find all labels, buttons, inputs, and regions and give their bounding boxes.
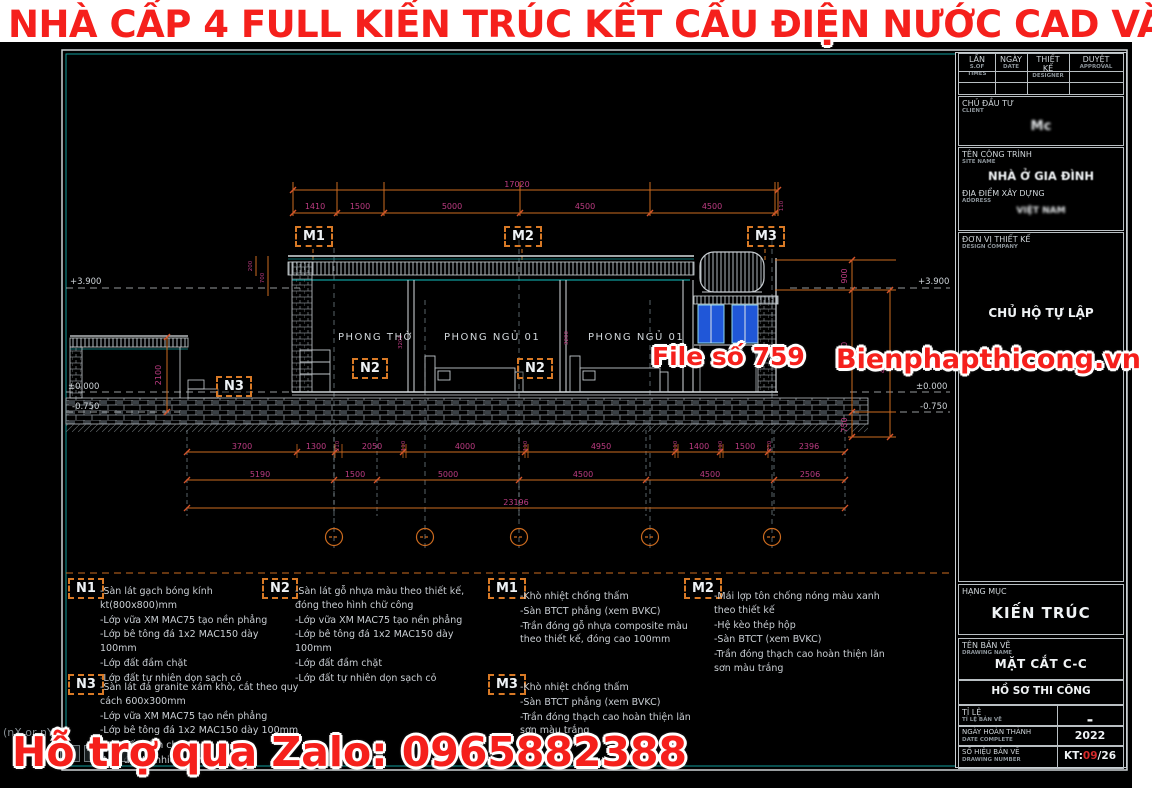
dim-label: 1500 (345, 470, 365, 479)
rev-col-ngay: NGÀY (995, 54, 1027, 64)
dim-label: 750 (840, 417, 849, 432)
note-line: -Trần đóng gỗ nhựa composite màu theo th… (520, 620, 705, 648)
watermark-file-number: File số 759 (652, 342, 805, 371)
dim-label: 1300 (306, 442, 326, 451)
dim-label: 110 (718, 440, 724, 451)
note-list-m2: -Mái lợp tôn chống nóng màu xanh theo th… (714, 590, 889, 677)
marker-m2: M2 (504, 226, 542, 247)
number-row: SỐ HIỆU BẢN VẼ DRAWING NUMBER KT:09/26 (958, 745, 1124, 769)
note-list-n2: -Sàn lát gỗ nhựa màu theo thiết kế, đóng… (295, 585, 475, 686)
number-prefix: KT: (1064, 750, 1083, 762)
address-sub: ADDRESS (959, 198, 1123, 205)
project-label: TÊN CÔNG TRÌNH (959, 148, 1123, 159)
room-label-tho: PHONG THỜ (338, 332, 414, 343)
note-line: -Lớp vữa XM MAC75 tạo nền phẳng (100, 710, 300, 724)
level-label: +3.900 (918, 277, 949, 287)
floor-ground (66, 392, 868, 432)
design-value: CHỦ HỘ TỰ LẬP (959, 306, 1123, 320)
note-line: -Lớp đất tự nhiên dọn sạch cỏ (295, 672, 475, 686)
dim-label: 200 (248, 260, 254, 271)
note-line: -Lớp đất đầm chặt (295, 657, 475, 671)
dim-label: 110 (401, 440, 407, 451)
note-line: -Khò nhiệt chống thấm (520, 590, 705, 604)
dim-label: 17020 (504, 180, 529, 189)
date-row: NGÀY HOÀN THÀNH DATE COMPLETE 2022 (958, 725, 1124, 747)
client-box: CHỦ ĐẦU TƯ CLIENT Mc (958, 96, 1124, 146)
promo-title: NHÀ CẤP 4 FULL KIẾN TRÚC KẾT CẤU ĐIỆN NƯ… (8, 3, 1152, 46)
drawing-value: MẶT CẮT C-C (959, 657, 1123, 671)
note-line: -Sàn BTCT phẳng (xem BVKC) (520, 605, 705, 619)
design-company-box: ĐƠN VỊ THIẾT KẾ DESIGN COMPANY CHỦ HỘ TỰ… (958, 232, 1124, 582)
promo-zalo: Hỗ trợ qua Zalo: 0965882388 (12, 728, 687, 776)
dim-label: 4000 (455, 442, 475, 451)
note-line: -Mái lợp tôn chống nóng màu xanh theo th… (714, 590, 889, 618)
note-line: -Lớp vữa XM MAC75 tạo nền phẳng (295, 614, 475, 628)
dim-label: 2100 (154, 365, 163, 385)
roof-slab (288, 256, 694, 280)
scale-row: TỈ LỆ TỈ LỆ BẢN VẼ - (958, 705, 1124, 727)
dim-label: 110 (673, 440, 679, 451)
note-marker-n2: N2 (262, 578, 298, 599)
marker-m3: M3 (747, 226, 785, 247)
note-line: -Lớp vữa XM MAC75 tạo nền phẳng (100, 614, 290, 628)
stage-value: HỒ SƠ THI CÔNG (959, 685, 1123, 697)
dim-label: 700 (260, 272, 266, 283)
dim-label: 1500 (350, 202, 370, 211)
level-dashes (66, 288, 950, 412)
note-line: -Sàn lát gỗ nhựa màu theo thiết kế, đóng… (295, 585, 475, 613)
dim-label: 5000 (438, 470, 458, 479)
rev-col-duyet: DUYỆT (1069, 54, 1123, 64)
level-label: ±0.000 (916, 382, 947, 392)
scale-sub: TỈ LỆ BẢN VẼ (959, 717, 1057, 724)
note-marker-n3: N3 (68, 674, 104, 695)
note-line: -Sàn BTCT (xem BVKC) (714, 633, 889, 647)
dim-label: 5190 (250, 470, 270, 479)
number-label: SỐ HIỆU BẢN VẼ (959, 746, 1057, 757)
date-label: NGÀY HOÀN THÀNH (959, 726, 1057, 737)
level-label: ±0.000 (68, 382, 99, 392)
dim-label: 3200 (564, 331, 570, 345)
note-line: -Lớp đất đầm chặt (100, 657, 290, 671)
note-line: -Hệ kèo thép hộp (714, 619, 889, 633)
level-label: +3.900 (70, 277, 101, 287)
note-line: -Trần đóng thạch cao hoàn thiện lăn sơn … (714, 648, 889, 676)
dim-label: 2506 (800, 470, 820, 479)
date-value: 2022 (1057, 729, 1123, 742)
number-red: 09 (1083, 750, 1098, 762)
drawing-label: TÊN BẢN VẼ (959, 639, 1123, 650)
title-block: LẦN S.OF TIMES NGÀY DATE THIẾT KẾ DESIGN… (955, 52, 1127, 768)
marker-n3-plan: N3 (216, 376, 252, 397)
level-label: -0.750 (72, 402, 99, 412)
note-marker-n1: N1 (68, 578, 104, 599)
number-sub: DRAWING NUMBER (959, 757, 1057, 764)
design-sub: DESIGN COMPANY (959, 244, 1123, 251)
number-value: KT:09/26 (1057, 750, 1123, 762)
marker-n2-a: N2 (352, 358, 388, 379)
dim-label: 900 (840, 268, 849, 283)
dim-label: 2050 (362, 442, 382, 451)
dim-label: 4500 (700, 470, 720, 479)
note-list-m1: -Khò nhiệt chống thấm -Sàn BTCT phẳng (x… (520, 590, 705, 648)
marker-n2-b: N2 (517, 358, 553, 379)
client-sub: CLIENT (959, 108, 1123, 115)
dim-label: 4500 (575, 202, 595, 211)
dim-label: 110 (779, 200, 785, 211)
dim-label: 1500 (735, 442, 755, 451)
project-box: TÊN CÔNG TRÌNH SITE NAME NHÀ Ở GIA ĐÌNH … (958, 147, 1124, 231)
dim-label: 3700 (232, 442, 252, 451)
room-label-ngu1: PHONG NGỦ 01 (444, 332, 540, 343)
date-sub: DATE COMPLETE (959, 737, 1057, 744)
watermark-site: Bienphapthicong.vn (836, 344, 1141, 375)
dim-label: 23196 (503, 498, 528, 507)
drawing-sub: DRAWING NAME (959, 650, 1123, 657)
dim-label: 4500 (573, 470, 593, 479)
dim-label: 210 (767, 440, 773, 451)
number-suffix: /26 (1098, 750, 1116, 762)
note-line: -Lớp bê tông đá 1x2 MAC150 dày 100mm (295, 628, 475, 656)
stage-box: HỒ SƠ THI CÔNG (958, 680, 1124, 705)
drawing-name-box: TÊN BẢN VẼ DRAWING NAME MẶT CẮT C-C (958, 638, 1124, 680)
note-line: -Lớp bê tông đá 1x2 MAC150 dày 100mm (100, 628, 290, 656)
dim-label: 210 (335, 440, 341, 451)
category-value: KIẾN TRÚC (959, 604, 1123, 622)
grid-bubbles (326, 529, 781, 546)
scale-label: TỈ LỆ (959, 706, 1057, 717)
dim-label: 2396 (799, 442, 819, 451)
client-value: Mc (959, 119, 1123, 134)
rev-row-empty (959, 82, 1123, 94)
revision-table: LẦN S.OF TIMES NGÀY DATE THIẾT KẾ DESIGN… (958, 53, 1124, 95)
address-label: ĐỊA ĐIỂM XÂY DỰNG (959, 187, 1123, 198)
dim-label: 1410 (305, 202, 325, 211)
project-value: NHÀ Ở GIA ĐÌNH (959, 169, 1123, 183)
note-line: -Sàn lát đá granite xám khò, cắt theo qu… (100, 681, 300, 709)
dim-label: 5000 (442, 202, 462, 211)
note-line: -Sàn BTCT phẳng (xem BVKC) (520, 696, 710, 710)
project-sub: SITE NAME (959, 159, 1123, 166)
rev-col-ngay-sub: DATE (995, 64, 1027, 71)
level-label: -0.750 (920, 402, 947, 412)
category-label: HẠNG MỤC (959, 585, 1123, 596)
note-list-n1: -Sàn lát gạch bóng kính kt(800x800)mm -L… (100, 585, 290, 686)
note-line: -Khò nhiệt chống thấm (520, 681, 710, 695)
dim-label: 1400 (689, 442, 709, 451)
client-label: CHỦ ĐẦU TƯ (959, 97, 1123, 108)
marker-m1: M1 (295, 226, 333, 247)
design-label: ĐƠN VỊ THIẾT KẾ (959, 233, 1123, 244)
dim-label: 4950 (591, 442, 611, 451)
dim-label: 4500 (702, 202, 722, 211)
dim-label: 110 (523, 440, 529, 451)
address-value: VIỆT NAM (959, 206, 1123, 216)
page: 17020 1410 1500 5000 4500 4500 110 (0, 0, 1152, 803)
rev-col-duyet-sub: APPROVAL (1069, 64, 1123, 71)
category-box: HẠNG MỤC KIẾN TRÚC (958, 584, 1124, 635)
rev-col-lan: LẦN (959, 54, 995, 64)
